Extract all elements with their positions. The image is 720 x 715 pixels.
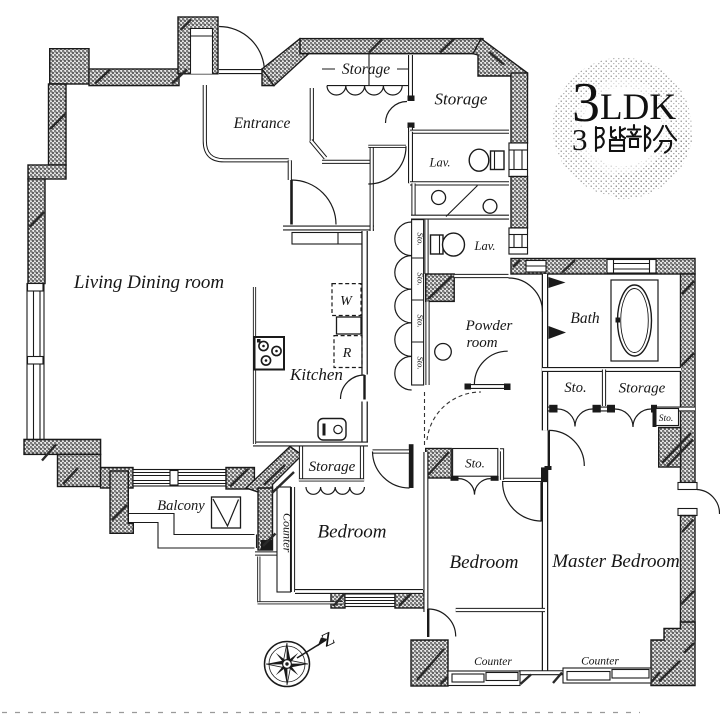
svg-text:Storage: Storage [342,61,390,78]
svg-text:Kitchen: Kitchen [289,365,343,384]
svg-text:Counter: Counter [581,656,619,668]
svg-text:Sto.: Sto. [465,456,485,471]
svg-text:Sto.: Sto. [416,233,426,246]
svg-text:Storage: Storage [309,459,356,475]
svg-text:Bedroom: Bedroom [318,522,387,543]
svg-text:Sto.: Sto. [659,414,674,424]
svg-text:R: R [342,346,352,361]
svg-text:Master Bedroom: Master Bedroom [551,551,680,572]
svg-text:room: room [466,335,497,351]
svg-text:Storage: Storage [435,90,488,109]
svg-text:3: 3 [572,122,588,157]
svg-text:Bath: Bath [570,310,600,327]
svg-text:Sto.: Sto. [416,273,426,286]
svg-text:Sto.: Sto. [416,357,426,370]
svg-text:Sto.: Sto. [416,315,426,328]
svg-text:Bedroom: Bedroom [450,552,519,573]
svg-text:Living Dining room: Living Dining room [73,272,224,293]
svg-text:W: W [340,294,353,309]
svg-text:Counter: Counter [281,513,295,553]
svg-text:Counter: Counter [474,656,512,668]
svg-text:Lav.: Lav. [429,156,451,170]
svg-text:Entrance: Entrance [233,115,291,132]
svg-text:Lav.: Lav. [474,239,496,253]
svg-text:Balcony: Balcony [157,498,205,514]
svg-text:Powder: Powder [465,318,513,334]
svg-text:Storage: Storage [619,381,666,397]
svg-text:Sto.: Sto. [564,380,586,396]
